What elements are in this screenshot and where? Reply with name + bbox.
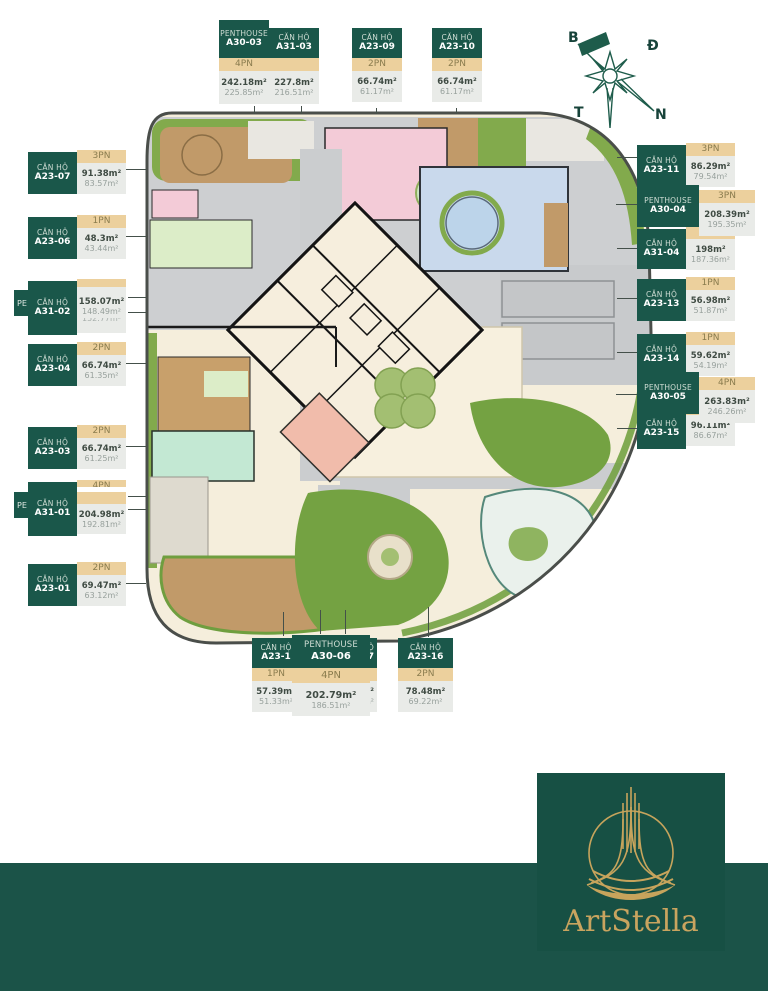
unit-number: A23-04 — [35, 364, 71, 374]
unit-number: A23-16 — [408, 652, 444, 662]
unit-number: A23-13 — [644, 299, 680, 309]
unit-type: CĂN HỘ — [37, 500, 68, 509]
unit-areas: 91.38m² 83.57m² — [77, 163, 126, 194]
unit-card-a23-06: CĂN HỘ A23-06 1PN 48.3m² 43.44m² — [28, 215, 126, 259]
unit-areas: 204.98m² 192.81m² — [77, 504, 126, 534]
area-gross: 227.8m² — [274, 78, 313, 88]
unit-header: PENTHOUSE A30-06 — [292, 635, 370, 668]
bedroom-count: 2PN — [77, 342, 126, 355]
unit-header: CĂN HỘ A23-14 — [637, 334, 686, 376]
leader-line — [616, 394, 637, 395]
area-net: 86.67m² — [694, 431, 728, 440]
area-net: 63.12m² — [85, 591, 119, 600]
bedroom-count: 3PN — [699, 190, 755, 203]
unit-number: A30-06 — [311, 651, 351, 663]
compass-icon: B Đ T N — [552, 18, 677, 133]
unit-card-a31-02: CĂN HỘ A31-02 158.07m² 148.49m² 152.77m² — [28, 279, 126, 335]
unit-type: PENTHOUSE — [304, 641, 358, 651]
unit-number: A23-14 — [644, 354, 680, 364]
area-net: 192.81m² — [82, 520, 121, 529]
unit-card-a23-11: CĂN HỘ A23-11 3PN 86.29m² 79.54m² — [637, 143, 735, 187]
unit-card-a23-16: CĂN HỘ A23-16 2PN 78.48m² 69.22m² — [398, 638, 453, 712]
area-net: 148.49m² — [82, 307, 121, 316]
leader-line — [617, 352, 637, 353]
bedroom-count: 4PN — [292, 668, 370, 683]
area-net: 61.25m² — [85, 454, 119, 463]
unit-header: CĂN HỘ A23-03 — [28, 427, 77, 469]
unit-areas: 69.47m² 63.12m² — [77, 575, 126, 606]
bedroom-count: 1PN — [686, 332, 735, 345]
bedroom-count: 2PN — [398, 668, 453, 681]
area-net: 187.36m² — [691, 255, 730, 264]
area-gross: 48.3m² — [85, 234, 119, 244]
bedroom-count: 2PN — [352, 58, 402, 71]
area-net: 54.19m² — [694, 361, 728, 370]
unit-areas: 86.29m² 79.54m² — [686, 156, 735, 187]
leader-line — [428, 607, 429, 637]
unit-areas: 242.18m² 225.85m² — [219, 71, 269, 104]
leader-line — [617, 157, 637, 158]
unit-number: A31-02 — [35, 307, 71, 317]
unit-number: A23-01 — [35, 584, 71, 594]
unit-type: CĂN HỘ — [361, 34, 392, 43]
leader-line — [617, 298, 637, 299]
area-gross: 158.07m² — [79, 297, 124, 307]
unit-card-a30-03-a31-03: PENTHOUSE A30-03 CĂN HỘ A31-03 4PN 242.1… — [219, 20, 319, 104]
bedroom-count — [77, 279, 126, 287]
area-gross: 66.74m² — [437, 77, 476, 87]
unit-type: CĂN HỘ — [441, 34, 472, 43]
leader-line — [128, 496, 146, 497]
unit-card-a23-09: CĂN HỘ A23-09 2PN 66.74m² 61.17m² — [352, 28, 402, 102]
area-gross: 208.39m² — [704, 210, 749, 220]
unit-areas: 66.74m² 61.35m² — [77, 355, 126, 386]
floor-plan-page: B Đ T N PENTHOUSE A30-03 CĂN HỘ A31-03 4… — [0, 0, 768, 991]
area-gross: 204.98m² — [79, 510, 124, 520]
area-net: 61.17m² — [440, 87, 474, 96]
leader-line — [254, 106, 255, 114]
artstella-logo: ArtStella — [537, 773, 725, 951]
unit-number: A23-15 — [644, 428, 680, 438]
area-gross: 242.18m² — [221, 78, 266, 88]
unit-number: A23-10 — [439, 42, 475, 52]
area-gross: 69.47m² — [82, 581, 121, 591]
unit-areas: 158.07m² 148.49m² 152.77m² — [77, 287, 126, 333]
leader-line — [126, 446, 146, 447]
unit-header: CĂN HỘ A23-09 — [352, 28, 402, 58]
unit-card-a23-14: CĂN HỘ A23-14 1PN 59.62m² 54.19m² — [637, 332, 735, 376]
area-net: 83.57m² — [85, 179, 119, 188]
area-net: 246.26m² — [708, 407, 747, 416]
unit-areas: 78.48m² 69.22m² — [398, 681, 453, 712]
bedroom-count: 1PN — [77, 215, 126, 228]
area-net: 61.17m² — [360, 87, 394, 96]
unit-type: CĂN HỘ — [37, 229, 68, 238]
leader-line — [126, 169, 146, 170]
area-gross: 57.39m² — [256, 687, 295, 697]
area-net: 225.85m² — [225, 88, 264, 97]
leader-line — [616, 204, 637, 205]
bedroom-count: 3PN — [77, 150, 126, 163]
unit-type: CĂN HỘ — [37, 576, 68, 585]
area-gross: 91.38m² — [82, 169, 121, 179]
unit-number: A23-09 — [359, 42, 395, 52]
unit-number: A31-04 — [644, 248, 680, 258]
unit-type: PENTHOUSE — [644, 197, 692, 206]
unit-header: CĂN HỘ A31-01 — [28, 482, 77, 536]
bedroom-count: 4PN — [219, 58, 319, 71]
leader-line — [126, 363, 146, 364]
bedroom-count — [77, 492, 126, 504]
artstella-logo-icon — [537, 773, 725, 913]
area-net: 43.44m² — [85, 244, 119, 253]
leader-line — [320, 610, 321, 634]
unit-type: CĂN HỘ — [646, 291, 677, 300]
unit-header: CĂN HỘ A23-16 — [398, 638, 453, 668]
area-gross: 66.74m² — [357, 77, 396, 87]
area-gross: 78.48m² — [406, 687, 445, 697]
unit-header: CĂN HỘ A31-02 — [28, 281, 77, 335]
bedroom-count: 1PN — [686, 277, 735, 290]
leader-line — [128, 312, 146, 313]
unit-areas: 263.83m² 246.26m² — [699, 390, 755, 423]
leader-line — [456, 108, 457, 114]
unit-type: CĂN HỘ — [37, 439, 68, 448]
area-gross: 66.74m² — [82, 444, 121, 454]
bedroom-count: 2PN — [77, 425, 126, 438]
unit-number: A30-03 — [226, 38, 262, 48]
unit-header: PENTHOUSE A30-05 — [637, 372, 699, 414]
area-net: 51.87m² — [694, 306, 728, 315]
unit-areas: 48.3m² 43.44m² — [77, 228, 126, 259]
unit-header: PENTHOUSE A30-04 — [637, 185, 699, 227]
unit-card-a30-04: PENTHOUSE A30-04 3PN 208.39m² 195.35m² — [637, 185, 755, 236]
leader-line — [345, 610, 346, 634]
area-net: 61.35m² — [85, 371, 119, 380]
leader-line — [126, 583, 146, 584]
unit-type: CĂN HỘ — [37, 299, 68, 308]
unit-card-a31-01: CĂN HỘ A31-01 4PN 204.98m² 192.81m² — [28, 480, 126, 536]
unit-type: CĂN HỘ — [260, 644, 291, 653]
unit-areas: 202.79m² 186.51m² — [292, 683, 370, 716]
unit-card-a23-10: CĂN HỘ A23-10 2PN 66.74m² 61.17m² — [432, 28, 482, 102]
compass-north-label: B — [568, 30, 579, 46]
brand-name: ArtStella — [537, 904, 725, 939]
bedroom-count: 2PN — [77, 562, 126, 575]
unit-areas: 66.74m² 61.17m² — [352, 71, 402, 102]
unit-areas: 208.39m² 195.35m² — [699, 203, 755, 236]
unit-number: A23-1 — [261, 652, 291, 662]
area-gross: 66.74m² — [82, 361, 121, 371]
leader-line — [617, 428, 637, 429]
unit-number: A31-01 — [35, 508, 71, 518]
unit-header: CĂN HỘ A31-03 — [269, 28, 319, 58]
unit-type: CĂN HỘ — [37, 356, 68, 365]
area-net: 186.51m² — [312, 701, 351, 710]
area-net: 216.51m² — [275, 88, 314, 97]
unit-number: A23-03 — [35, 447, 71, 457]
unit-card-a23-04: CĂN HỘ A23-04 2PN 66.74m² 61.35m² — [28, 342, 126, 386]
area-gross: 263.83m² — [704, 397, 749, 407]
unit-number: A30-04 — [650, 205, 686, 215]
area-net: 195.35m² — [708, 220, 747, 229]
unit-card-a30-06: PENTHOUSE A30-06 4PN 202.79m² 186.51m² — [292, 635, 370, 716]
leader-line — [376, 108, 377, 114]
floor-plan — [140, 105, 655, 650]
unit-header: CĂN HỘ A23-01 — [28, 564, 77, 606]
compass-west-label: T — [574, 105, 584, 121]
unit-number: A30-05 — [650, 392, 686, 402]
area-net: 79.54m² — [694, 172, 728, 181]
unit-header: CĂN HỘ A23-04 — [28, 344, 77, 386]
compass-south-label: N — [655, 107, 667, 123]
compass-east-label: Đ — [647, 38, 659, 54]
unit-card-a23-07: CĂN HỘ A23-07 3PN 91.38m² 83.57m² — [28, 150, 126, 194]
unit-header: PENTHOUSE A30-03 — [219, 20, 269, 58]
unit-card-a30-05: PENTHOUSE A30-05 4PN 263.83m² 246.26m² — [637, 372, 755, 423]
area-net: 51.33m² — [259, 697, 293, 706]
unit-areas: 227.8m² 216.51m² — [269, 71, 319, 104]
unit-type: CĂN HỘ — [646, 240, 677, 249]
unit-areas: 66.74m² 61.17m² — [432, 71, 482, 102]
unit-card-a23-13: CĂN HỘ A23-13 1PN 56.98m² 51.87m² — [637, 277, 735, 321]
unit-type: CĂN HỘ — [410, 644, 441, 653]
area-net: 69.22m² — [409, 697, 443, 706]
leader-line — [301, 106, 302, 114]
area-gross: 86.29m² — [691, 162, 730, 172]
unit-header: CĂN HỘ A23-07 — [28, 152, 77, 194]
area-gross: 202.79m² — [306, 690, 357, 701]
unit-header: CĂN HỘ A23-06 — [28, 217, 77, 259]
unit-areas: 66.74m² 61.25m² — [77, 438, 126, 469]
unit-type: PENTHOUSE — [644, 384, 692, 393]
unit-type: CĂN HỘ — [37, 164, 68, 173]
unit-areas: 198m² 187.36m² — [686, 239, 735, 270]
unit-card-a23-01: CĂN HỘ A23-01 2PN 69.47m² 63.12m² — [28, 562, 126, 606]
unit-number: A23-07 — [35, 172, 71, 182]
bedroom-count: 2PN — [432, 58, 482, 71]
unit-number: A23-06 — [35, 237, 71, 247]
area-gross: 56.98m² — [691, 296, 730, 306]
leader-line — [126, 236, 146, 237]
leader-line — [617, 248, 637, 249]
leader-line — [128, 509, 146, 510]
unit-header: CĂN HỘ A23-13 — [637, 279, 686, 321]
bedroom-count: 4PN — [77, 480, 126, 492]
leader-line — [283, 612, 284, 636]
unit-areas: 56.98m² 51.87m² — [686, 290, 735, 321]
area-gross: 59.62m² — [691, 351, 730, 361]
unit-number: A31-03 — [276, 42, 312, 52]
unit-header: CĂN HỘ A23-10 — [432, 28, 482, 58]
unit-type: CĂN HỘ — [646, 157, 677, 166]
unit-card-a23-03: CĂN HỘ A23-03 2PN 66.74m² 61.25m² — [28, 425, 126, 469]
leader-line — [128, 297, 146, 298]
unit-type: CĂN HỘ — [278, 34, 309, 43]
area-gross: 198m² — [695, 245, 725, 255]
unit-type: CĂN HỘ — [646, 346, 677, 355]
bedroom-count: 4PN — [699, 377, 755, 390]
unit-type: PENTHOUSE — [220, 30, 268, 39]
bedroom-count: 3PN — [686, 143, 735, 156]
unit-header: CĂN HỘ A23-11 — [637, 145, 686, 187]
unit-number: A23-11 — [644, 165, 680, 175]
